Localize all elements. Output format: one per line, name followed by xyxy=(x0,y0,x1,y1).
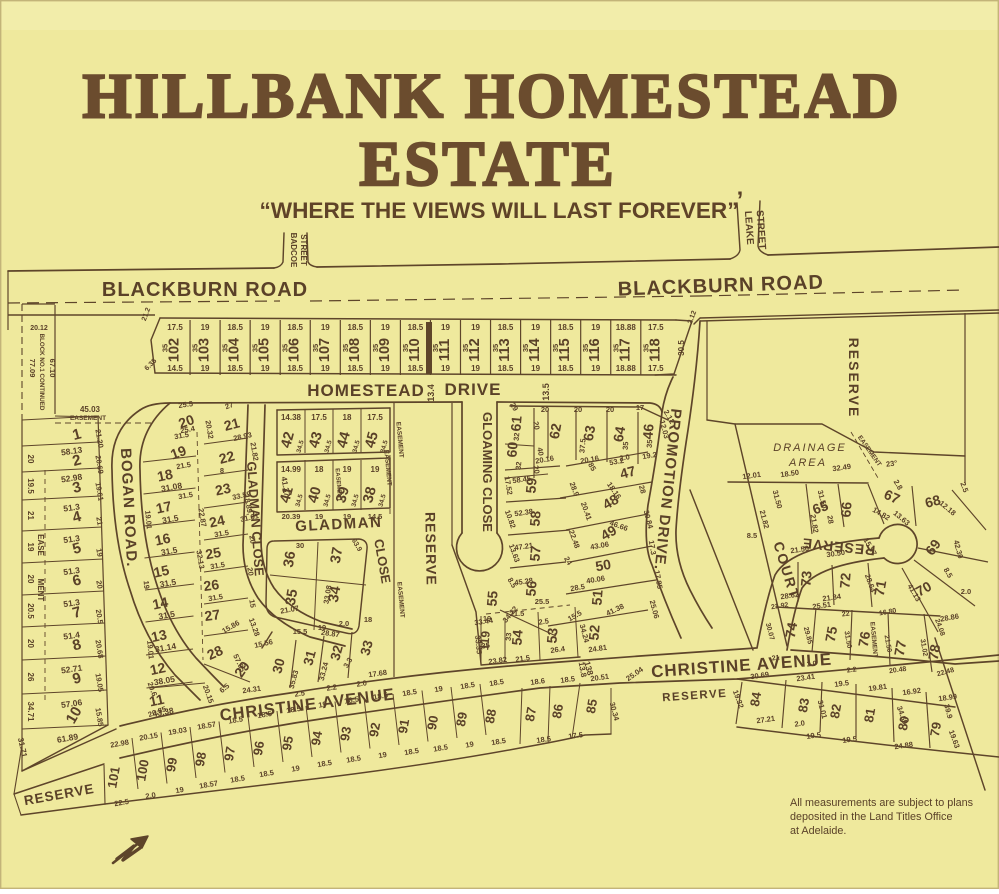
svg-text:67.10: 67.10 xyxy=(48,359,57,378)
svg-text:18.88: 18.88 xyxy=(616,323,637,332)
svg-text:20: 20 xyxy=(26,575,35,584)
svg-text:73: 73 xyxy=(797,570,814,587)
svg-text:20: 20 xyxy=(94,580,104,590)
svg-text:75: 75 xyxy=(822,625,840,643)
svg-text:60: 60 xyxy=(503,441,520,458)
svg-text:35: 35 xyxy=(221,344,230,352)
svg-text:66: 66 xyxy=(837,501,854,518)
svg-text:77.09: 77.09 xyxy=(28,359,37,378)
svg-text:35: 35 xyxy=(251,344,260,352)
svg-text:19: 19 xyxy=(465,739,475,749)
svg-text:35: 35 xyxy=(311,344,320,352)
svg-text:18.88: 18.88 xyxy=(616,364,637,373)
svg-text:GLOAMING CLOSE: GLOAMING CLOSE xyxy=(480,412,495,532)
svg-text:19: 19 xyxy=(381,323,390,332)
svg-text:17.5: 17.5 xyxy=(648,364,664,373)
svg-text:15.5: 15.5 xyxy=(293,627,308,636)
svg-text:All measurements are subject t: All measurements are subject to plans xyxy=(790,797,974,809)
svg-text:85: 85 xyxy=(583,698,600,715)
svg-text:19: 19 xyxy=(321,323,330,332)
svg-text:13.4: 13.4 xyxy=(426,384,436,402)
svg-text:19: 19 xyxy=(201,323,210,332)
svg-text:8.5: 8.5 xyxy=(747,531,757,540)
svg-text:19: 19 xyxy=(591,364,600,373)
svg-text:2.5: 2.5 xyxy=(538,616,550,626)
svg-text:45.03: 45.03 xyxy=(80,405,101,414)
svg-text:MENT: MENT xyxy=(36,579,45,602)
svg-text:19: 19 xyxy=(591,323,600,332)
svg-text:19: 19 xyxy=(381,364,390,373)
svg-text:32: 32 xyxy=(512,432,522,441)
svg-text:35: 35 xyxy=(521,344,530,352)
svg-text:35: 35 xyxy=(645,439,655,448)
svg-text:19: 19 xyxy=(142,580,152,589)
svg-text:34.71: 34.71 xyxy=(26,701,35,722)
svg-text:RESERVE: RESERVE xyxy=(846,338,862,419)
svg-text:2.2: 2.2 xyxy=(846,666,857,674)
svg-text:19: 19 xyxy=(318,699,328,709)
svg-text:25: 25 xyxy=(204,544,222,562)
svg-text:19: 19 xyxy=(321,364,330,373)
svg-text:22: 22 xyxy=(841,610,850,618)
svg-text:20.12: 20.12 xyxy=(30,325,48,332)
svg-text:27: 27 xyxy=(203,606,221,624)
svg-text:18.5: 18.5 xyxy=(408,364,424,373)
svg-text:19.5: 19.5 xyxy=(26,478,35,494)
svg-text:72: 72 xyxy=(836,572,853,589)
svg-text:19: 19 xyxy=(343,465,352,474)
svg-text:18.5: 18.5 xyxy=(287,323,303,332)
svg-text:2.0: 2.0 xyxy=(961,587,971,596)
svg-text:14.99: 14.99 xyxy=(281,465,302,474)
svg-text:19: 19 xyxy=(441,364,450,373)
svg-text:35: 35 xyxy=(281,344,290,352)
svg-text:BADCOE: BADCOE xyxy=(289,233,298,268)
svg-text:51: 51 xyxy=(588,589,605,606)
svg-text:20: 20 xyxy=(26,455,35,464)
svg-text:18: 18 xyxy=(315,465,324,474)
svg-text:20: 20 xyxy=(531,421,541,431)
svg-text:21: 21 xyxy=(94,516,104,526)
svg-text:19: 19 xyxy=(318,623,326,632)
svg-text:87: 87 xyxy=(522,706,539,723)
svg-text:18.5: 18.5 xyxy=(348,323,364,332)
svg-text:15: 15 xyxy=(247,599,257,609)
svg-text:HOMESTEAD: HOMESTEAD xyxy=(307,381,425,400)
svg-text:35: 35 xyxy=(551,344,560,352)
svg-text:at Adelaide.: at Adelaide. xyxy=(790,825,846,837)
svg-text:77: 77 xyxy=(891,639,909,657)
svg-text:AREA: AREA xyxy=(788,457,827,469)
svg-text:RESERVE: RESERVE xyxy=(422,512,439,586)
svg-text:18.5: 18.5 xyxy=(227,323,243,332)
svg-text:17.5: 17.5 xyxy=(648,323,664,332)
svg-text:STREET: STREET xyxy=(299,234,308,266)
svg-text:83: 83 xyxy=(795,697,812,714)
svg-text:2.0: 2.0 xyxy=(339,619,349,628)
svg-text:46: 46 xyxy=(639,423,656,440)
svg-text:35: 35 xyxy=(341,344,350,352)
svg-text:18.5: 18.5 xyxy=(558,323,574,332)
svg-text:18.5: 18.5 xyxy=(227,364,243,373)
svg-text:35: 35 xyxy=(611,344,620,352)
svg-text:19: 19 xyxy=(175,785,185,795)
svg-text:26: 26 xyxy=(202,576,220,594)
svg-text:26: 26 xyxy=(26,673,35,682)
svg-text:17.5: 17.5 xyxy=(167,323,183,332)
svg-text:19: 19 xyxy=(434,684,444,694)
svg-text:ESTATE: ESTATE xyxy=(359,129,616,199)
svg-text:DRAINAGE: DRAINAGE xyxy=(773,442,846,454)
svg-text:13.5: 13.5 xyxy=(541,383,551,401)
svg-text:19: 19 xyxy=(371,465,380,474)
svg-text:19: 19 xyxy=(471,364,480,373)
svg-text:33: 33 xyxy=(504,632,514,641)
svg-text:18.5: 18.5 xyxy=(408,323,424,332)
svg-text:19: 19 xyxy=(261,323,270,332)
svg-text:19: 19 xyxy=(26,543,35,552)
svg-text:33.35: 33.35 xyxy=(473,635,484,654)
svg-text:BLACKBURN ROAD: BLACKBURN ROAD xyxy=(102,279,308,301)
svg-text:17: 17 xyxy=(636,403,644,412)
svg-text:35: 35 xyxy=(431,344,440,352)
svg-text:50: 50 xyxy=(594,556,612,574)
svg-text:BLOCK NO.1 CONTINUED: BLOCK NO.1 CONTINUED xyxy=(38,334,45,411)
svg-text:“WHERE THE VIEWS WILL LAST FOR: “WHERE THE VIEWS WILL LAST FOREVER” xyxy=(259,198,738,223)
svg-text:2.0: 2.0 xyxy=(145,790,157,801)
svg-text:18.5: 18.5 xyxy=(498,364,514,373)
svg-text:35: 35 xyxy=(461,344,470,352)
svg-text:74: 74 xyxy=(782,621,800,639)
svg-text:37.5: 37.5 xyxy=(577,438,587,453)
svg-text:86: 86 xyxy=(549,703,566,720)
svg-text:81: 81 xyxy=(861,707,878,724)
svg-text:DRIVE: DRIVE xyxy=(445,380,502,399)
svg-text:19: 19 xyxy=(531,323,540,332)
svg-text:19.01: 19.01 xyxy=(143,510,154,529)
svg-text:19: 19 xyxy=(201,364,210,373)
svg-text:35: 35 xyxy=(641,344,650,352)
svg-text:35: 35 xyxy=(401,344,410,352)
svg-text:35: 35 xyxy=(621,441,631,450)
svg-text:37: 37 xyxy=(328,546,347,565)
svg-text:61: 61 xyxy=(507,415,524,432)
svg-text:36: 36 xyxy=(281,550,300,569)
svg-text:18.5: 18.5 xyxy=(287,364,303,373)
svg-text:62: 62 xyxy=(546,422,564,440)
svg-text:23°: 23° xyxy=(885,458,897,468)
svg-text:19.01: 19.01 xyxy=(145,640,156,659)
svg-text:18.5: 18.5 xyxy=(558,364,574,373)
svg-text:20: 20 xyxy=(531,465,541,475)
svg-text:14.38: 14.38 xyxy=(281,413,302,422)
svg-text:30.5: 30.5 xyxy=(677,340,686,356)
svg-text:19: 19 xyxy=(378,750,388,760)
svg-text:14.5: 14.5 xyxy=(167,364,183,373)
svg-text:18: 18 xyxy=(364,615,372,624)
svg-text:EASE: EASE xyxy=(36,534,45,556)
svg-text:53: 53 xyxy=(543,627,560,644)
svg-text:19: 19 xyxy=(94,548,104,558)
svg-text:35: 35 xyxy=(161,344,170,352)
svg-text:20.5: 20.5 xyxy=(26,603,35,619)
svg-text:2.0: 2.0 xyxy=(794,718,806,728)
svg-text:18: 18 xyxy=(343,413,352,422)
svg-text:21.5: 21.5 xyxy=(510,609,525,618)
svg-text:25.5: 25.5 xyxy=(535,597,550,606)
svg-text:19: 19 xyxy=(471,323,480,332)
svg-text:35: 35 xyxy=(491,344,500,352)
svg-text:19: 19 xyxy=(531,364,540,373)
svg-text:55: 55 xyxy=(483,590,500,607)
svg-text:20: 20 xyxy=(26,639,35,648)
svg-text:HILLBANK HOMESTEAD: HILLBANK HOMESTEAD xyxy=(83,61,902,131)
svg-text:18.5: 18.5 xyxy=(498,323,514,332)
svg-text:17.5: 17.5 xyxy=(311,413,327,422)
svg-text:28: 28 xyxy=(825,515,835,525)
svg-text:35: 35 xyxy=(191,344,200,352)
svg-text:35: 35 xyxy=(581,344,590,352)
svg-text:64: 64 xyxy=(610,425,628,443)
svg-text:30: 30 xyxy=(296,541,304,550)
svg-text:19: 19 xyxy=(291,763,301,773)
svg-text:deposited in the Land Titles O: deposited in the Land Titles Office xyxy=(790,811,952,823)
svg-text:19: 19 xyxy=(441,323,450,332)
svg-text:21: 21 xyxy=(26,511,35,520)
svg-text:20: 20 xyxy=(574,405,582,414)
svg-text:18.5: 18.5 xyxy=(348,364,364,373)
svg-text:19: 19 xyxy=(261,364,270,373)
svg-text:17.5: 17.5 xyxy=(367,413,383,422)
svg-text:19: 19 xyxy=(483,614,491,623)
svg-text:35: 35 xyxy=(371,344,380,352)
